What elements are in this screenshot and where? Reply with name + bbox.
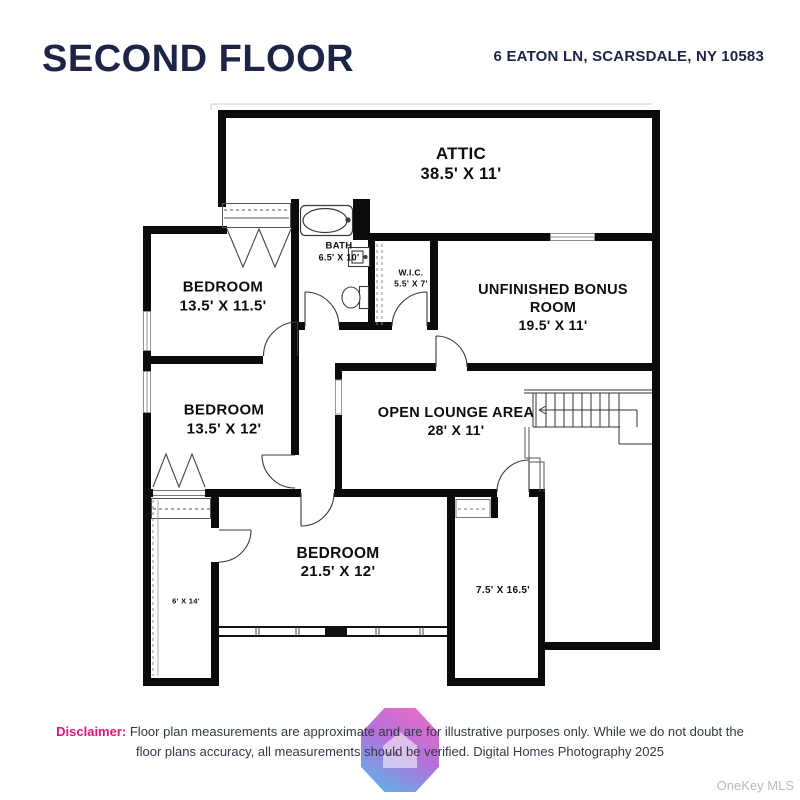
closet-shelf	[456, 500, 490, 518]
disclaimer-label: Disclaimer:	[56, 724, 126, 739]
room-dims: 6' X 14'	[172, 596, 200, 605]
disclaimer-text: Disclaimer: Floor plan measurements are …	[55, 722, 745, 762]
room-label-closet-6x14: 6' X 14'	[172, 596, 200, 605]
stair-direction-arrow	[539, 406, 637, 414]
room-name: UNFINISHED BONUS ROOM	[466, 281, 641, 317]
bathtub-fixture	[301, 206, 353, 236]
room-name: BEDROOM	[296, 544, 379, 563]
closet-rod	[377, 244, 382, 326]
roof-outline	[211, 104, 652, 110]
room-label-open-lounge: OPEN LOUNGE AREA 28' X 11'	[378, 404, 535, 440]
room-label-room-7x16: 7.5' X 16.5'	[476, 585, 530, 598]
room-label-attic: ATTIC 38.5' X 11'	[421, 143, 502, 185]
door-arc	[436, 336, 467, 367]
disclaimer-body: Floor plan measurements are approximate …	[130, 724, 744, 759]
room-label-bonus-room: UNFINISHED BONUS ROOM 19.5' X 11'	[466, 281, 641, 335]
window-mullions	[256, 627, 423, 636]
room-label-bedroom-1: BEDROOM 13.5' X 11.5'	[180, 278, 267, 316]
floor-plan-page: SECOND FLOOR 6 EATON LN, SCARSDALE, NY 1…	[0, 0, 800, 800]
closet-shelf	[152, 491, 211, 519]
room-dims: 5.5' X 7'	[394, 278, 428, 289]
room-dims: 21.5' X 12'	[296, 563, 379, 582]
room-dims: 13.5' X 12'	[184, 420, 264, 439]
room-dims: 28' X 11'	[378, 422, 535, 440]
mls-watermark: OneKey MLS	[717, 778, 794, 793]
closet-shelf	[223, 204, 291, 228]
room-name: BEDROOM	[184, 401, 264, 420]
room-dims: 38.5' X 11'	[421, 164, 502, 185]
room-name: BATH	[319, 240, 360, 252]
room-dims: 7.5' X 16.5'	[476, 585, 530, 598]
door-arc	[262, 455, 295, 488]
bifold-door	[227, 229, 291, 267]
door-arc	[301, 493, 334, 526]
room-dims: 6.5' X 10'	[319, 252, 360, 263]
staircase	[524, 390, 652, 444]
room-dims: 13.5' X 11.5'	[180, 297, 267, 316]
room-name: OPEN LOUNGE AREA	[378, 404, 535, 422]
door-arc	[392, 292, 427, 326]
room-label-wic: W.I.C. 5.5' X 7'	[394, 267, 428, 288]
door-arc	[305, 292, 339, 326]
door-arc	[264, 322, 298, 356]
bifold-door	[153, 454, 205, 487]
floorplan-linework	[0, 0, 800, 800]
room-label-bath: BATH 6.5' X 10'	[319, 240, 360, 263]
toilet-fixture	[342, 287, 369, 309]
door-arc	[497, 460, 529, 492]
room-dims: 19.5' X 11'	[466, 317, 641, 335]
cased-opening	[336, 380, 342, 414]
room-name: ATTIC	[421, 143, 502, 164]
room-name: BEDROOM	[180, 278, 267, 297]
room-label-bedroom-3: BEDROOM 21.5' X 12'	[296, 544, 379, 582]
door-arc	[219, 530, 251, 562]
room-name: W.I.C.	[394, 267, 428, 278]
room-label-bedroom-2: BEDROOM 13.5' X 12'	[184, 401, 264, 439]
